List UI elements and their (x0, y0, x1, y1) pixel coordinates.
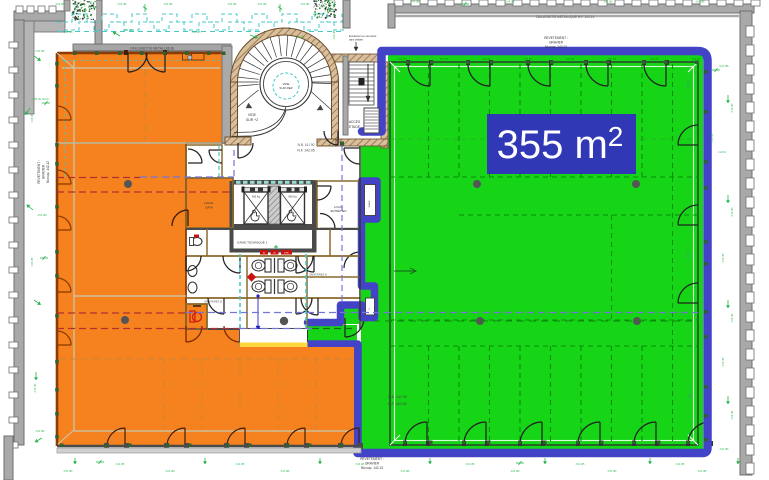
svg-text:3.04 165: 3.04 165 (32, 113, 34, 123)
svg-text:SUR REZ: SUR REZ (279, 86, 292, 90)
svg-text:3.04 165: 3.04 165 (566, 59, 575, 61)
svg-text:3.04 165: 3.04 165 (356, 464, 366, 466)
svg-text:3.04 165: 3.04 165 (164, 4, 174, 6)
svg-text:GRAVIER: GRAVIER (42, 164, 46, 179)
svg-text:355 m2: 355 m2 (497, 121, 624, 167)
svg-text:3.04 165: 3.04 165 (64, 471, 74, 473)
svg-text:3.04 165: 3.04 165 (723, 357, 725, 367)
svg-text:3.04 165: 3.04 165 (698, 471, 708, 473)
svg-text:3.04 165: 3.04 165 (301, 4, 311, 6)
svg-text:3.04 165: 3.04 165 (258, 4, 268, 6)
svg-text:3.04 165: 3.04 165 (732, 103, 734, 113)
svg-text:3.04 165: 3.04 165 (576, 464, 586, 466)
svg-text:DATA: DATA (205, 206, 213, 210)
svg-text:3.04 165: 3.04 165 (401, 471, 411, 473)
svg-text:SANITAIRES H: SANITAIRES H (309, 273, 327, 277)
svg-text:3.04 165: 3.04 165 (228, 4, 238, 6)
svg-text:3.04 165: 3.04 165 (692, 59, 701, 61)
svg-text:SANITAIRES D: SANITAIRES D (204, 300, 222, 304)
svg-text:3.04 165: 3.04 165 (116, 464, 126, 466)
svg-text:GAINE: GAINE (368, 200, 371, 207)
svg-text:GRAVIER: GRAVIER (549, 41, 564, 45)
svg-text:3.04 165: 3.04 165 (398, 59, 407, 61)
svg-text:CAILLEBOTIS METALLIQUE N.F. 14: CAILLEBOTIS METALLIQUE N.F. 142.14 (536, 15, 595, 19)
svg-text:3.04 165: 3.04 165 (36, 51, 46, 53)
svg-text:3.04 165: 3.04 165 (608, 59, 617, 61)
svg-text:3.04 165: 3.04 165 (411, 2, 421, 4)
svg-text:Niv.sup. 142.13: Niv.sup. 142.13 (545, 45, 567, 49)
svg-text:3.04 165: 3.04 165 (64, 32, 74, 34)
svg-text:LOCAL: LOCAL (204, 201, 214, 205)
svg-text:GAINE TECHNIQUE 1: GAINE TECHNIQUE 1 (237, 241, 268, 245)
svg-text:3.04 165: 3.04 165 (466, 464, 476, 466)
svg-text:3.04 165: 3.04 165 (732, 207, 734, 217)
svg-text:3.04 165: 3.04 165 (32, 257, 34, 267)
svg-text:REVETEMENT :: REVETEMENT : (544, 36, 568, 40)
svg-text:3.04 165: 3.04 165 (712, 133, 714, 143)
svg-text:dans châssis: dans châssis (349, 39, 364, 42)
svg-text:3.04 165: 3.04 165 (296, 37, 306, 39)
svg-text:3.04 165: 3.04 165 (732, 410, 734, 420)
svg-text:CAILLEBOTIS METALLIQUE: CAILLEBOTIS METALLIQUE (130, 46, 175, 50)
svg-text:N.F. 142.05: N.F. 142.05 (297, 149, 314, 153)
svg-text:3.04 165: 3.04 165 (676, 464, 686, 466)
svg-text:ENTRETIEN: ENTRETIEN (331, 209, 347, 213)
svg-text:3.04 165: 3.04 165 (482, 59, 491, 61)
svg-text:3.04 165: 3.04 165 (36, 431, 46, 433)
svg-text:3.04 165: 3.04 165 (35, 383, 37, 393)
svg-text:EI30: EI30 (284, 253, 289, 255)
svg-text:3.04 165: 3.04 165 (608, 471, 618, 473)
svg-text:3.04 165: 3.04 165 (650, 59, 659, 61)
svg-text:GRAVIER: GRAVIER (365, 462, 380, 466)
svg-text:3.04 165: 3.04 165 (124, 30, 134, 32)
svg-text:ETAGE: ETAGE (349, 125, 361, 129)
svg-text:+6.50 Niv 142.01: +6.50 Niv 142.01 (31, 99, 49, 101)
svg-text:3.04 165: 3.04 165 (118, 4, 128, 6)
svg-text:3.04 165: 3.04 165 (166, 471, 176, 473)
svg-text:3.04 165: 3.04 165 (334, 30, 336, 40)
svg-text:N.F. 142.05: N.F. 142.05 (388, 402, 406, 406)
svg-text:3.04 165: 3.04 165 (506, 2, 516, 4)
svg-text:ACCES: ACCES (349, 120, 361, 124)
svg-text:REVETEMENT :: REVETEMENT : (37, 160, 41, 184)
svg-text:REVETEMENT :: REVETEMENT : (360, 457, 384, 461)
svg-text:3.04 165: 3.04 165 (604, 2, 614, 4)
svg-text:3.04 165: 3.04 165 (281, 471, 291, 473)
svg-text:3.04 165: 3.04 165 (56, 4, 66, 6)
svg-text:3.04 165: 3.04 165 (723, 253, 725, 263)
svg-text:N.B. 141 90: N.B. 141 90 (298, 143, 315, 147)
svg-text:650 Kg: 650 Kg (252, 195, 261, 199)
svg-text:JOINT CREUX: JOINT CREUX (388, 262, 392, 280)
svg-text:650 Kg: 650 Kg (288, 195, 297, 199)
svg-text:Niv.sup. 142.12: Niv.sup. 142.12 (46, 161, 50, 183)
svg-text:6.24 165: 6.24 165 (720, 66, 730, 68)
svg-text:3.04 165: 3.04 165 (236, 464, 246, 466)
svg-text:Niv.sup. 142.13: Niv.sup. 142.13 (361, 466, 383, 470)
svg-text:3.04 165: 3.04 165 (732, 313, 734, 323)
svg-text:2.24 64: 2.24 64 (718, 152, 726, 154)
svg-text:3.04 165: 3.04 165 (192, 32, 202, 34)
svg-text:3.04 165: 3.04 165 (38, 215, 48, 217)
svg-text:SUR +2: SUR +2 (246, 118, 258, 122)
svg-text:3.04 165: 3.04 165 (720, 449, 730, 451)
svg-text:VIDE: VIDE (248, 113, 257, 117)
svg-text:3.04 165: 3.04 165 (440, 59, 449, 61)
svg-text:3.04 165: 3.04 165 (696, 2, 706, 4)
svg-text:3.04 165: 3.04 165 (511, 471, 521, 473)
svg-text:3.04 165: 3.04 165 (524, 59, 533, 61)
svg-text:N.B. 141 90: N.B. 141 90 (388, 395, 407, 399)
